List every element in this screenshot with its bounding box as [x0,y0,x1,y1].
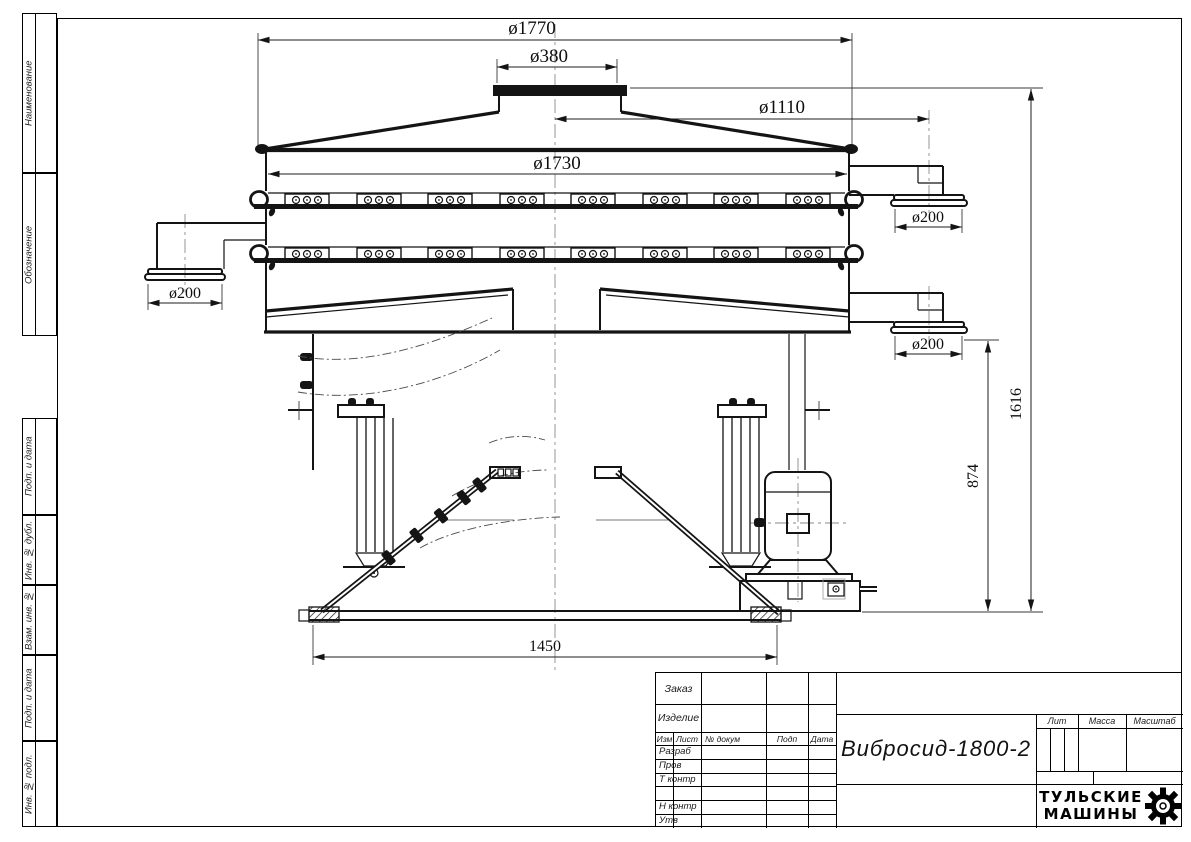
massa-label: Масса [1078,714,1126,728]
dim-height-base: 874 [965,464,982,488]
order-label: Заказ [656,673,701,704]
dimension-lines [148,40,1031,657]
company-line2: МАШИНЫ [1044,806,1139,823]
machine-cover [255,112,858,191]
product-label: Изделие [656,704,701,732]
clamp-bands [251,192,863,272]
base-plate [299,607,791,622]
dim-outlet-circle: ø1110 [759,97,805,118]
inner-funnel [264,289,851,332]
col-dokum: № докум [701,732,770,745]
row-nkontr: Н контр [659,800,699,813]
col-list: Лист [673,732,701,745]
dim-base-width: 1450 [529,638,561,655]
base-drum [288,334,830,470]
gear-icon [1144,785,1182,827]
extension-lines [148,33,1043,665]
dim-inlet: ø380 [530,46,568,67]
dimension-arrows [148,37,1034,660]
body-walls [266,208,849,333]
spring-feet [343,553,771,577]
drawing-sheet: Наименование Обозначение Подп. и дата Ин… [0,0,1191,842]
dim-outlet-right-bottom: ø200 [912,336,944,353]
vibration-motor [740,472,877,611]
dim-top-flange: ø1770 [508,18,556,39]
col-izm: Изм [656,732,673,745]
title-block: Заказ Изделие Изм Лист № докум Подп Дата… [655,672,1182,827]
inlet-collar [493,85,627,112]
outlet-right-top [849,166,967,206]
row-empty [659,786,699,799]
dim-body: ø1730 [533,153,581,174]
outlet-left [145,223,266,280]
dimension-labels: ø1770 ø380 ø1110 ø1730 ø200 ø200 ø200 14… [169,18,1025,655]
row-prov: Пров [659,759,699,772]
dim-height-total: 1616 [1008,388,1025,420]
lit-label: Лит [1036,714,1078,728]
masshtab-label: Масштаб [1126,714,1183,728]
company-line1: ТУЛЬСКИЕ [1039,789,1143,806]
company-logo-text: ТУЛЬСКИЕ МАШИНЫ [1038,786,1144,826]
row-utv: Утв [659,814,699,827]
row-razrab: Разраб [659,745,699,758]
col-podp: Подп [766,732,808,745]
outlet-right-bottom [849,293,967,333]
row-tkontr: Т контр [659,773,699,786]
dim-outlet-left: ø200 [169,285,201,302]
dim-outlet-right-top: ø200 [912,209,944,226]
col-data: Дата [808,732,836,745]
leader-curves [298,318,676,548]
stand-strut-right [595,467,779,613]
document-title: Вибросид-1800-2 [836,714,1036,784]
